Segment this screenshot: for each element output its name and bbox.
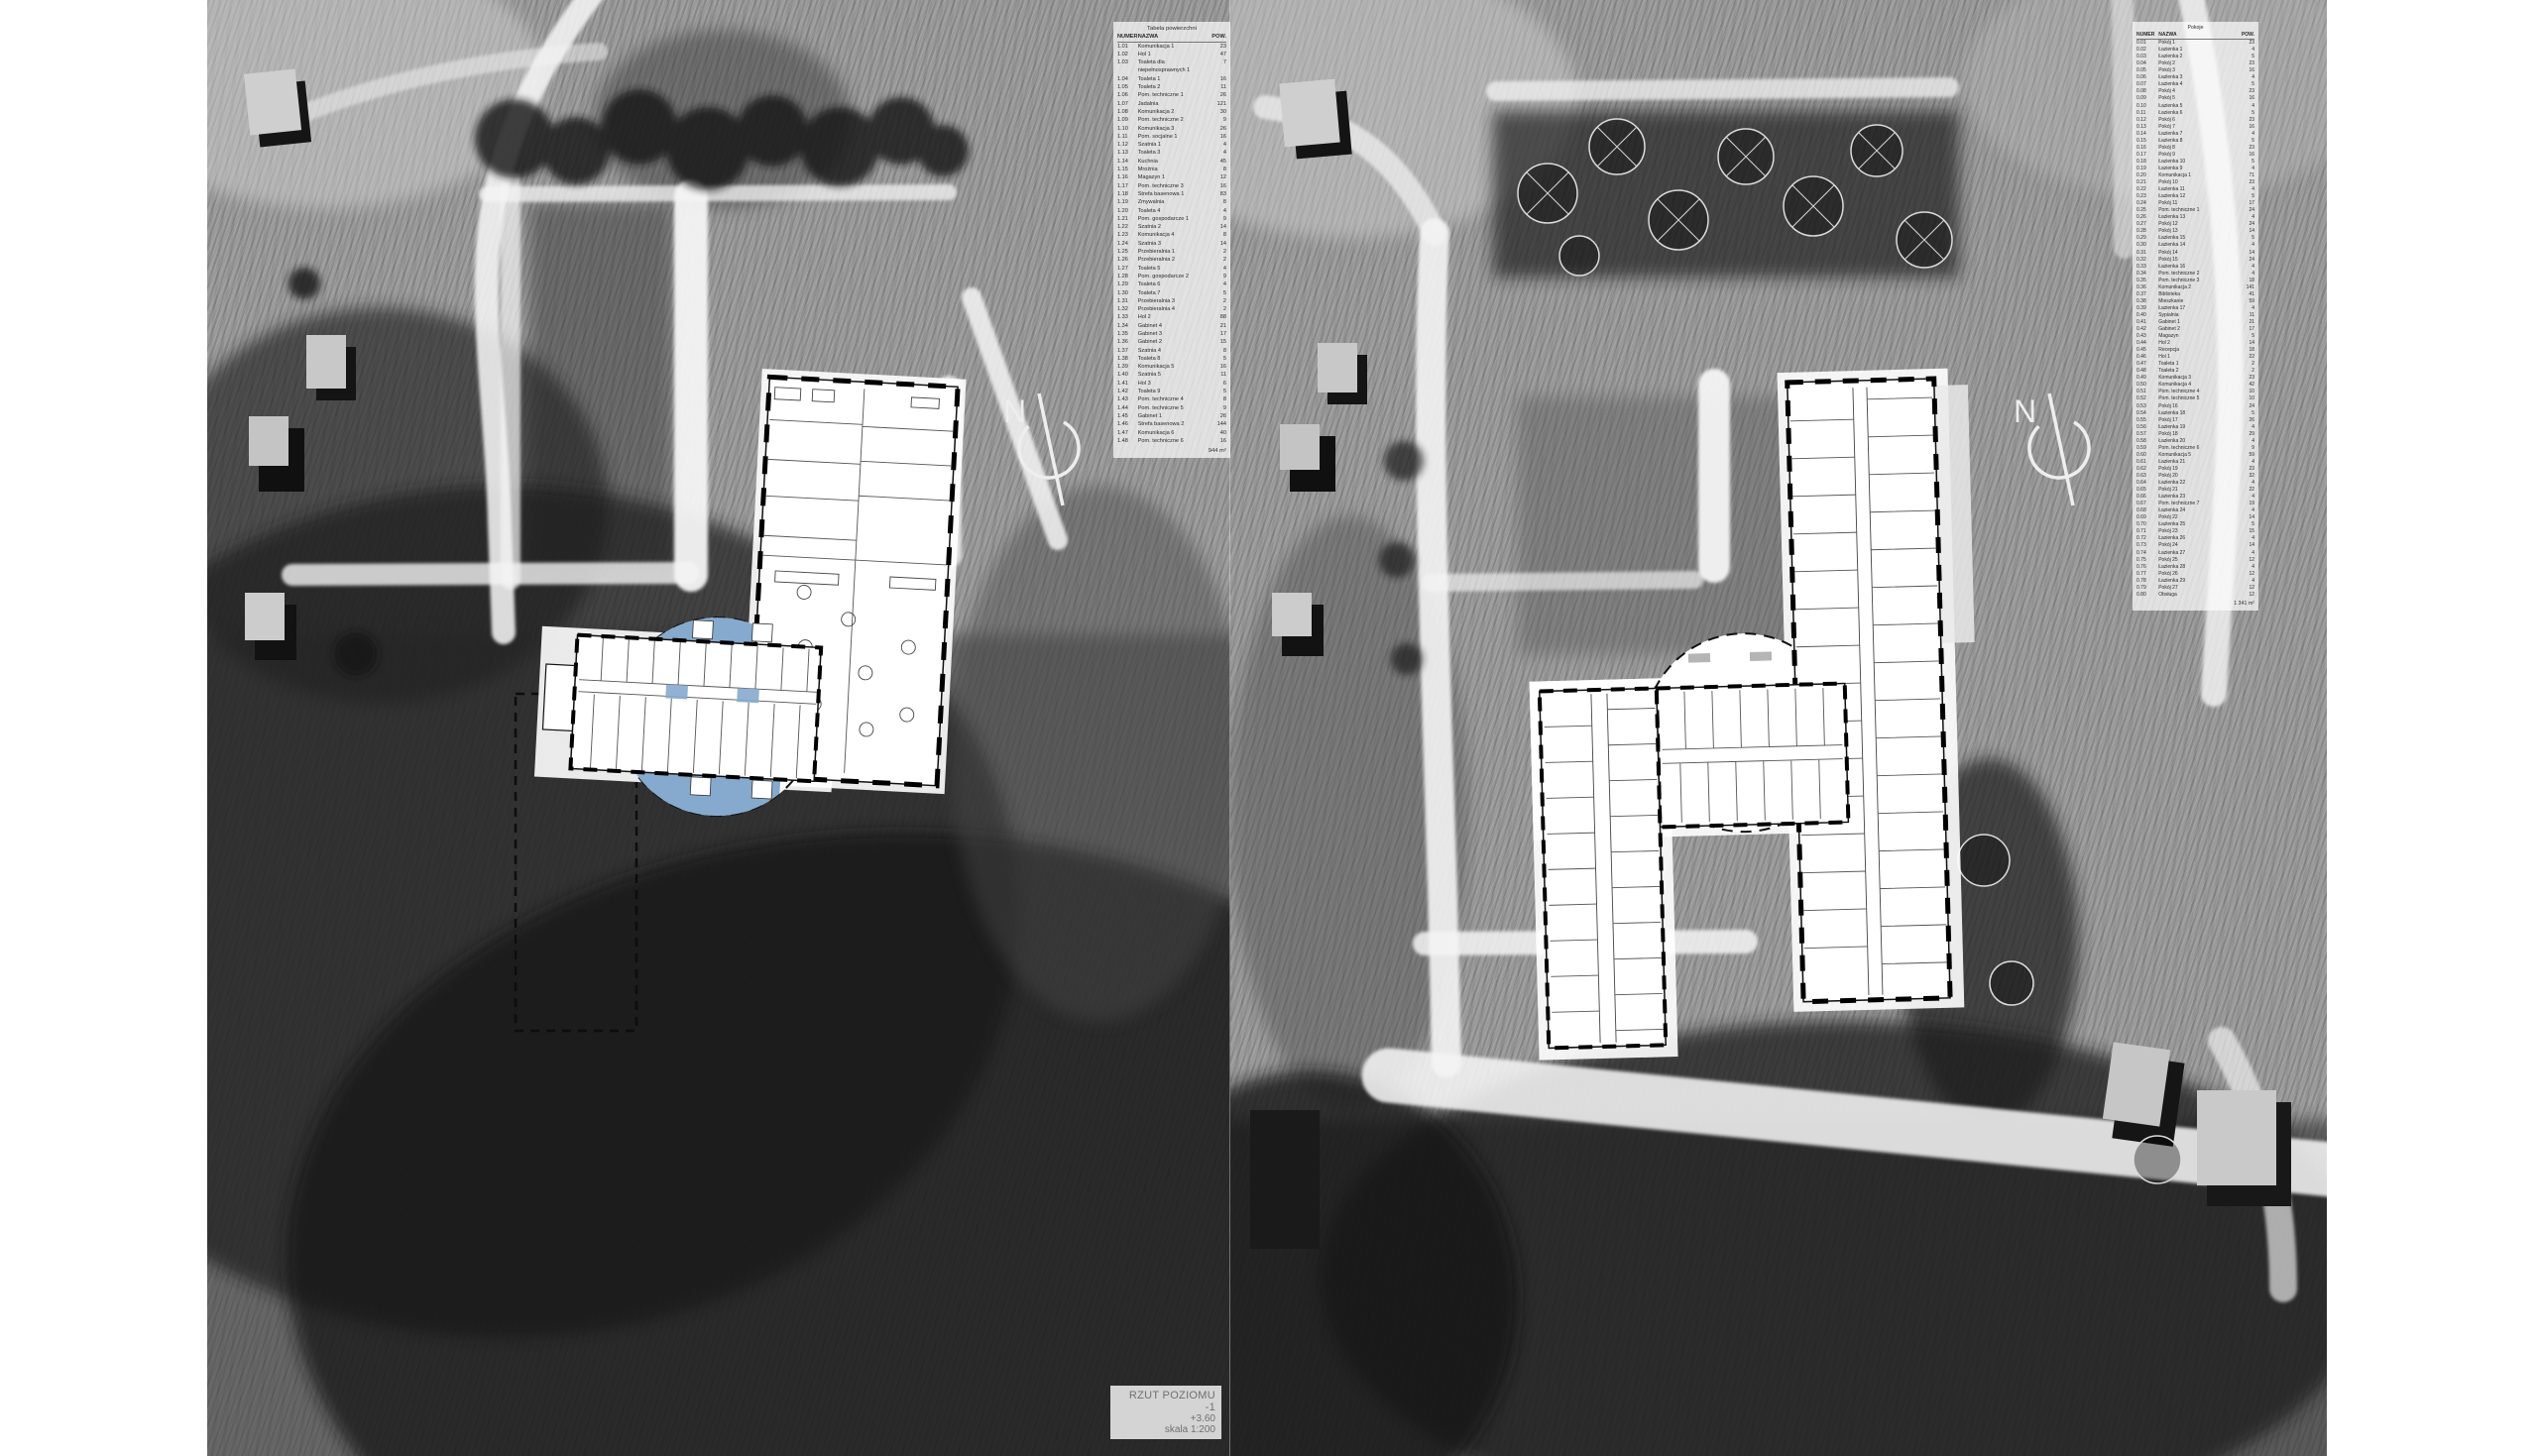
table-row: 1.15Mroźnia8	[1117, 166, 1226, 173]
table-row: 0.21Pokój 1023	[2136, 179, 2254, 186]
table-row: 0.40Sypialnia11	[2136, 312, 2254, 319]
table-row: 0.20Komunikacja 171	[2136, 172, 2254, 179]
table-row: 0.19Łazienka 94	[2136, 166, 2254, 172]
table-row: 1.02Hol 147	[1117, 51, 1226, 58]
table-row: 1.16Magazyn 112	[1117, 173, 1226, 181]
col-nazwa: NAZWA	[1136, 33, 1211, 41]
table-row: 0.49Komunikacja 323	[2136, 375, 2254, 382]
north-arrow-icon: N	[2014, 393, 2100, 505]
table-row: 1.06Pom. techniczne 126	[1117, 91, 1226, 99]
table-row: 1.47Komunikacja 640	[1117, 429, 1226, 437]
table-row: 0.48Toaleta 22	[2136, 368, 2254, 375]
table-row: 0.74Łazienka 274	[2136, 550, 2254, 557]
table-row: 0.45Recepcja18	[2136, 347, 2254, 354]
table-row: 0.70Łazienka 255	[2136, 521, 2254, 528]
table-row: 0.52Pom. techniczne 510	[2136, 395, 2254, 402]
col-numer: NUMER	[2136, 32, 2156, 39]
table-row: 0.72Łazienka 264	[2136, 535, 2254, 542]
table-row: 0.64Łazienka 224	[2136, 480, 2254, 487]
table-row: 0.03Łazienka 25	[2136, 54, 2254, 60]
wing-horizontal	[1657, 683, 1849, 827]
legend-rows: 0.01Pokój 1230.02Łazienka 140.03Łazienka…	[2136, 40, 2254, 599]
table-row: 0.38Mieszkanie59	[2136, 298, 2254, 305]
table-row: 1.30Toaleta 75	[1117, 289, 1226, 297]
table-row: 1.17Pom. techniczne 316	[1117, 182, 1226, 190]
table-row: 1.13Toaleta 34	[1117, 149, 1226, 157]
table-row: 0.34Pom. techniczne 24	[2136, 271, 2254, 278]
table-row: 0.65Pokój 2122	[2136, 487, 2254, 494]
table-row: 0.27Pokój 1224	[2136, 221, 2254, 228]
table-row: 1.23Komunikacja 48	[1117, 231, 1226, 239]
table-row: 1.42Toaleta 95	[1117, 388, 1226, 395]
drawing-title: RZUT POZIOMU -1	[1116, 1390, 1215, 1413]
table-row: 0.68Łazienka 244	[2136, 507, 2254, 514]
table-row: 0.42Gabinet 217	[2136, 326, 2254, 333]
legend-total: 944 m²	[1117, 447, 1226, 455]
table-row: 0.55Pokój 1726	[2136, 417, 2254, 424]
table-row: 0.16Pokój 823	[2136, 145, 2254, 152]
table-row: 0.30Łazienka 144	[2136, 242, 2254, 249]
table-row: 1.12Szatnia 14	[1117, 141, 1226, 149]
table-row: 0.31Pokój 1414	[2136, 250, 2254, 257]
table-row: 1.08Komunikacja 230	[1117, 108, 1226, 116]
table-row: 0.06Łazienka 34	[2136, 74, 2254, 81]
table-row: 0.15Łazienka 85	[2136, 138, 2254, 145]
table-row: 0.26Łazienka 134	[2136, 214, 2254, 221]
table-row: 1.39Komunikacja 516	[1117, 363, 1226, 371]
legend-rows: 1.01Komunikacja 1231.02Hol 1471.03Toalet…	[1117, 43, 1226, 446]
col-pow: POW.	[1211, 33, 1227, 41]
table-row: 0.17Pokój 916	[2136, 152, 2254, 159]
table-row: 0.73Pokój 2414	[2136, 542, 2254, 549]
table-row: 0.41Gabinet 121	[2136, 319, 2254, 326]
table-row: 1.29Toaleta 64	[1117, 280, 1226, 288]
table-row: 0.13Pokój 716	[2136, 124, 2254, 131]
table-row: 0.33Łazienka 164	[2136, 264, 2254, 271]
table-row: 0.59Pom. techniczne 69	[2136, 445, 2254, 452]
table-row: 0.08Pokój 423	[2136, 88, 2254, 95]
legend-total: 1 341 m²	[2136, 601, 2254, 608]
left-panel-drawing: N	[207, 0, 1230, 1456]
table-row: 1.18Strefa basenowa 183	[1117, 190, 1226, 198]
table-row: 0.63Pokój 2032	[2136, 473, 2254, 480]
table-row: 0.57Pokój 1829	[2136, 431, 2254, 438]
table-row: 0.77Pokój 2612	[2136, 571, 2254, 578]
table-row: 1.26Przebieralnia 22	[1117, 256, 1226, 264]
table-row: 1.21Pom. gospodarcze 19	[1117, 215, 1226, 223]
table-row: 0.22Łazienka 114	[2136, 186, 2254, 193]
table-row: 0.56Łazienka 194	[2136, 424, 2254, 431]
table-row: 1.34Gabinet 421	[1117, 322, 1226, 330]
table-row: 1.36Gabinet 215	[1117, 338, 1226, 346]
table-row: 1.41Hol 36	[1117, 380, 1226, 388]
table-row: 0.37Biblioteka41	[2136, 291, 2254, 298]
table-row: 1.38Toaleta 85	[1117, 355, 1226, 363]
table-row: 1.03Toaleta dla niepełnosprawnych 17	[1117, 58, 1226, 75]
table-row: 1.19Zmywalnia8	[1117, 198, 1226, 206]
table-row: 1.28Pom. gospodarcze 29	[1117, 273, 1226, 280]
table-row: 0.02Łazienka 14	[2136, 47, 2254, 54]
table-row: 1.33Hol 288	[1117, 313, 1226, 321]
table-row: 0.09Pokój 516	[2136, 95, 2254, 102]
table-row: 0.53Pokój 1624	[2136, 403, 2254, 410]
table-row: 0.71Pokój 2315	[2136, 528, 2254, 535]
table-row: 0.07Łazienka 45	[2136, 81, 2254, 88]
legend-header: NUMER NAZWA POW.	[1117, 33, 1226, 42]
table-row: 0.61Łazienka 214	[2136, 459, 2254, 466]
legend-title: Tabela powierzchni	[1117, 25, 1226, 33]
table-row: 0.62Pokój 1923	[2136, 466, 2254, 473]
legend-header: NUMER NAZWA POW.	[2136, 32, 2254, 40]
table-row: 0.44Hol 214	[2136, 340, 2254, 347]
table-row: 0.28Pokój 1314	[2136, 228, 2254, 235]
table-row: 1.25Przebieralnia 12	[1117, 248, 1226, 256]
table-row: 0.05Pokój 316	[2136, 67, 2254, 74]
table-row: 0.18Łazienka 105	[2136, 159, 2254, 166]
table-row: 1.27Toaleta 54	[1117, 265, 1226, 273]
legend-table-right: Pokoje NUMER NAZWA POW. 0.01Pokój 1230.0…	[2133, 22, 2258, 611]
table-row: 0.10Łazienka 54	[2136, 103, 2254, 110]
table-row: 1.44Pom. techniczne 59	[1117, 404, 1226, 412]
table-row: 1.09Pom. techniczne 29	[1117, 116, 1226, 124]
table-row: 0.50Komunikacja 442	[2136, 382, 2254, 389]
table-row: 0.76Łazienka 284	[2136, 564, 2254, 571]
table-row: 0.29Łazienka 155	[2136, 235, 2254, 242]
legend-title: Pokoje	[2136, 25, 2254, 32]
table-row: 0.80Obsługa12	[2136, 592, 2254, 599]
table-row: 0.67Pom. techniczne 719	[2136, 501, 2254, 507]
site-plan-level-minus1: N	[207, 0, 1230, 1456]
table-row: 0.79Pokój 2712	[2136, 585, 2254, 592]
table-row: 0.58Łazienka 204	[2136, 438, 2254, 445]
table-row: 1.35Gabinet 317	[1117, 330, 1226, 338]
legend-table-left: Tabela powierzchni NUMER NAZWA POW. 1.01…	[1113, 22, 1230, 458]
drawing-level: +3.60	[1116, 1413, 1215, 1424]
table-row: 0.01Pokój 123	[2136, 40, 2254, 47]
table-row: 0.32Pokój 1524	[2136, 257, 2254, 264]
north-label: N	[2014, 393, 2036, 429]
table-row: 1.31Przebieralnia 32	[1117, 297, 1226, 305]
table-row: 1.11Pom. socjalne 116	[1117, 133, 1226, 141]
col-numer: NUMER	[1117, 33, 1136, 41]
table-row: 1.10Komunikacja 326	[1117, 125, 1226, 133]
table-row: 1.45Gabinet 126	[1117, 412, 1226, 420]
table-row: 1.24Szatnia 314	[1117, 240, 1226, 248]
col-pow: POW.	[2237, 32, 2254, 39]
table-row: 0.25Pom. techniczne 124	[2136, 207, 2254, 214]
table-row: 0.69Pokój 2214	[2136, 514, 2254, 521]
table-row: 1.22Szatnia 214	[1117, 223, 1226, 231]
table-row: 0.43Magazyn5	[2136, 333, 2254, 340]
table-row: 1.40Szatnia 511	[1117, 371, 1226, 379]
table-row: 1.07Jadalnia121	[1117, 100, 1226, 108]
table-row: 1.14Kuchnia45	[1117, 158, 1226, 166]
table-row: 0.11Łazienka 65	[2136, 110, 2254, 117]
table-row: 0.14Łazienka 74	[2136, 131, 2254, 138]
table-row: 1.01Komunikacja 123	[1117, 43, 1226, 51]
table-row: 1.04Toaleta 116	[1117, 75, 1226, 83]
table-row: 0.04Pokój 223	[2136, 60, 2254, 67]
north-label: N	[1003, 393, 1026, 429]
table-row: 0.66Łazienka 234	[2136, 494, 2254, 501]
table-row: 1.43Pom. techniczne 48	[1117, 395, 1226, 403]
table-row: 0.75Pokój 2512	[2136, 557, 2254, 564]
site-plan-sheet: N	[0, 0, 2538, 1456]
table-row: 0.39Łazienka 174	[2136, 305, 2254, 312]
table-row: 1.20Toaleta 44	[1117, 207, 1226, 215]
table-row: 1.48Pom. techniczne 616	[1117, 437, 1226, 445]
table-row: 1.05Toaleta 211	[1117, 83, 1226, 91]
table-row: 0.54Łazienka 185	[2136, 410, 2254, 417]
table-row: 0.24Pokój 1117	[2136, 200, 2254, 207]
col-nazwa: NAZWA	[2156, 32, 2237, 39]
hotel-wing-left	[1540, 688, 1666, 1048]
title-block: RZUT POZIOMU -1 +3.60 skala 1:200	[1110, 1386, 1221, 1439]
table-row: 0.12Pokój 623	[2136, 117, 2254, 124]
table-row: 0.35Pom. techniczne 318	[2136, 278, 2254, 284]
table-row: 0.47Toaleta 12	[2136, 361, 2254, 368]
table-row: 0.23Łazienka 125	[2136, 193, 2254, 200]
table-row: 0.51Pom. techniczne 410	[2136, 389, 2254, 395]
table-row: 1.37Szatnia 48	[1117, 347, 1226, 355]
drawing-scale: skala 1:200	[1116, 1424, 1215, 1435]
table-row: 0.36Komunikacja 2141	[2136, 284, 2254, 291]
table-row: 0.60Komunikacja 559	[2136, 452, 2254, 459]
table-row: 1.32Przebieralnia 42	[1117, 305, 1226, 313]
table-row: 1.46Strefa basenowa 2144	[1117, 420, 1226, 428]
table-row: 0.78Łazienka 294	[2136, 578, 2254, 585]
table-row: 0.46Hol 122	[2136, 354, 2254, 361]
